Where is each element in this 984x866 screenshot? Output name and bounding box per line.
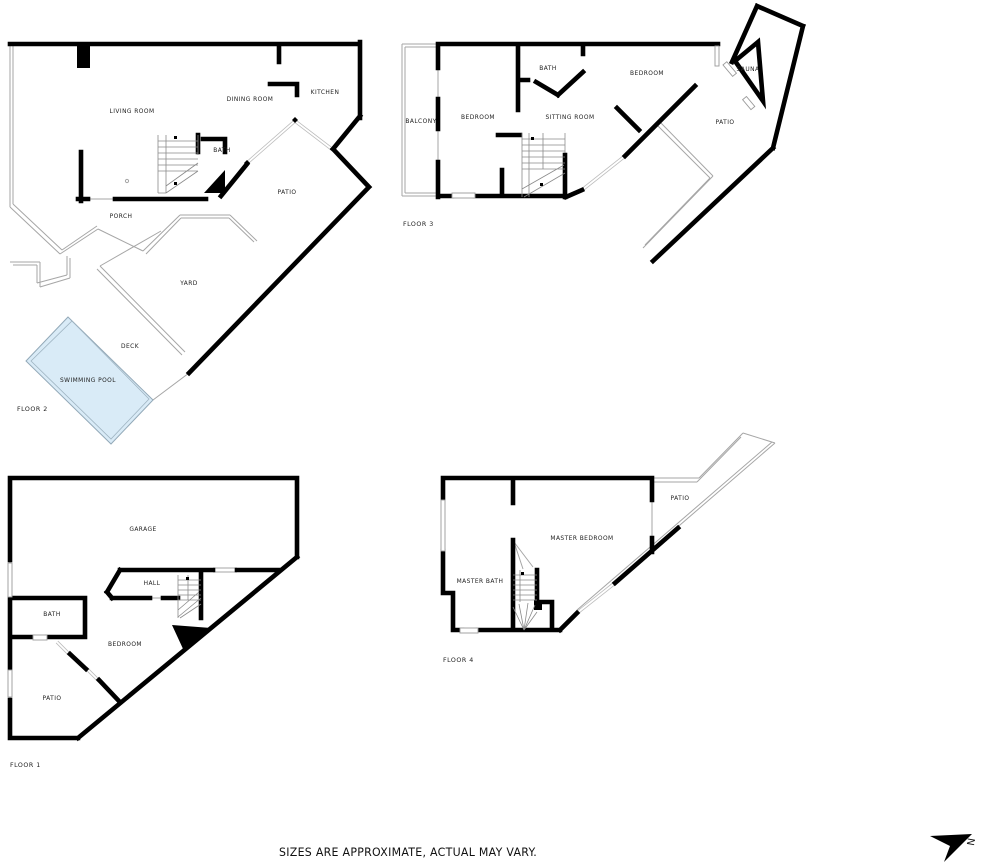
floor2-stairs-arrow-bottom [174,182,177,185]
floor4-thin-lines [514,433,775,628]
floor4-stairs [513,570,537,630]
north-arrow: N [930,834,976,862]
floor3-glass-wall-core [582,156,625,190]
floor3-stairs [522,133,565,197]
floor2-glass-wall [247,121,333,163]
floor1-stairs-arrow [186,577,189,580]
room-label-bedroom-right: BEDROOM [630,71,664,77]
room-label-master-bedroom: MASTER BEDROOM [550,536,613,542]
floor2-fixture-symbol [125,179,128,182]
floor3-walls [438,6,803,261]
floor-2-plan: LIVING ROOM DINING ROOM KITCHEN BATH PAT… [10,42,369,444]
room-label-patio-f2: PATIO [278,190,297,196]
floor3-stairs-arrow-bottom [540,183,543,186]
room-label-deck: DECK [121,344,139,350]
floor3-window-top [715,46,719,66]
floor1-stairs [178,575,201,618]
floor-1-label: FLOOR 1 [10,762,41,769]
room-label-swimming-pool: SWIMMING POOL [60,378,116,384]
floor4-stairs-post [534,600,542,610]
room-label-garage: GARAGE [129,527,156,533]
floorplan-canvas: LIVING ROOM DINING ROOM KITCHEN BATH PAT… [0,0,984,866]
floor-3-plan: BALCONY BEDROOM BATH SITTING ROOM BEDROO… [402,6,803,261]
room-label-dining-room: DINING ROOM [227,97,274,103]
room-label-bath-f3: BATH [539,66,556,72]
room-label-balcony: BALCONY [405,119,436,125]
floor1-window-left-upper [8,563,12,597]
floor2-stairs [158,135,198,193]
floor-4-plan: MASTER BATH MASTER BEDROOM PATIO FLOOR 4 [441,433,775,664]
floor-1-plan: GARAGE HALL BATH BEDROOM PATIO FLOOR 1 [8,478,297,769]
room-label-patio-f4: PATIO [671,496,690,502]
room-label-sitting-room: SITTING ROOM [546,115,595,121]
room-label-yard: YARD [179,281,198,287]
room-label-bath-f2: BATH [213,148,230,154]
floor-2-label: FLOOR 2 [17,406,48,413]
floor3-stairs-arrow-top [531,137,534,140]
room-label-patio-f1: PATIO [43,696,62,702]
sauna-window [743,96,755,109]
floor3-thin-lines [402,44,717,248]
floor2-stairs-arrow-top [174,136,177,139]
north-letter: N [964,837,976,846]
room-label-patio-f3: PATIO [716,120,735,126]
floor1-bath-window [33,635,47,640]
room-label-bedroom-f1: BEDROOM [108,642,142,648]
room-label-porch: PORCH [110,214,133,220]
room-label-bath-f1: BATH [43,612,60,618]
floor2-wall-column [77,44,90,68]
room-label-hall: HALL [144,581,161,587]
room-label-living-room: LIVING ROOM [109,109,154,115]
room-label-sauna: SAUNA [737,67,760,73]
room-label-master-bath: MASTER BATH [457,579,504,585]
room-label-kitchen: KITCHEN [311,90,340,96]
floor1-window-left-lower [8,670,12,697]
floor4-glass-wall-core [577,583,615,613]
floor3-window-bottom [452,193,475,198]
floorplan-svg: LIVING ROOM DINING ROOM KITCHEN BATH PAT… [0,0,984,866]
floor-3-label: FLOOR 3 [403,221,434,228]
disclaimer-text: SIZES ARE APPROXIMATE, ACTUAL MAY VARY. [279,845,537,859]
room-label-bedroom-left: BEDROOM [461,115,495,121]
floor4-window-left [441,500,445,551]
floor4-window-bottom [460,628,478,633]
floor4-stairs-arrow [521,572,524,575]
floor2-bath-corner-wall [204,170,225,193]
floor-4-label: FLOOR 4 [443,657,474,664]
